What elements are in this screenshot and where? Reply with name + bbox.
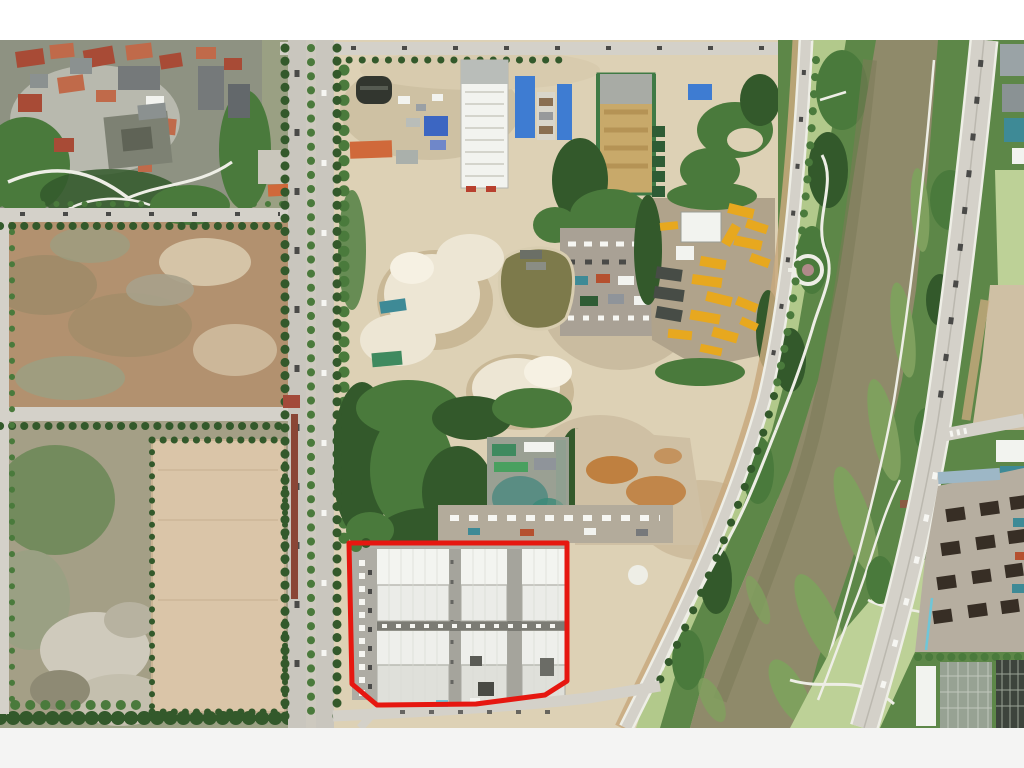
orange-roof-building <box>350 140 393 158</box>
warehouse-r2c1 <box>377 631 449 703</box>
blue-roof-shed <box>688 84 712 100</box>
white-highrise <box>461 60 508 192</box>
top-margin <box>0 0 1024 40</box>
blue-tarp-stacks <box>424 116 448 136</box>
retention-pond <box>499 248 573 329</box>
photo-area <box>0 40 1024 731</box>
gridded-roof-buildings <box>916 660 1024 728</box>
warehouse-complex-highlighted <box>349 538 567 705</box>
truck-staging-area <box>438 505 673 543</box>
red-corridor-wall <box>291 414 298 599</box>
urban-village-top-left <box>0 40 271 225</box>
warehouse-r1c1 <box>377 549 449 621</box>
warehouse-r2c2 <box>461 631 507 703</box>
green-truck-row <box>652 126 665 197</box>
bottom-margin <box>0 728 1024 768</box>
red-pavilion <box>283 395 300 408</box>
main-avenue-vertical <box>283 40 337 728</box>
warehouse-r2c3 <box>522 631 565 703</box>
screenshot-canvas <box>0 0 1024 768</box>
warehouse-r1c2 <box>461 549 507 621</box>
aerial-photo <box>0 0 1024 768</box>
warehouse-r1c3 <box>522 549 565 621</box>
top-road <box>280 42 810 55</box>
